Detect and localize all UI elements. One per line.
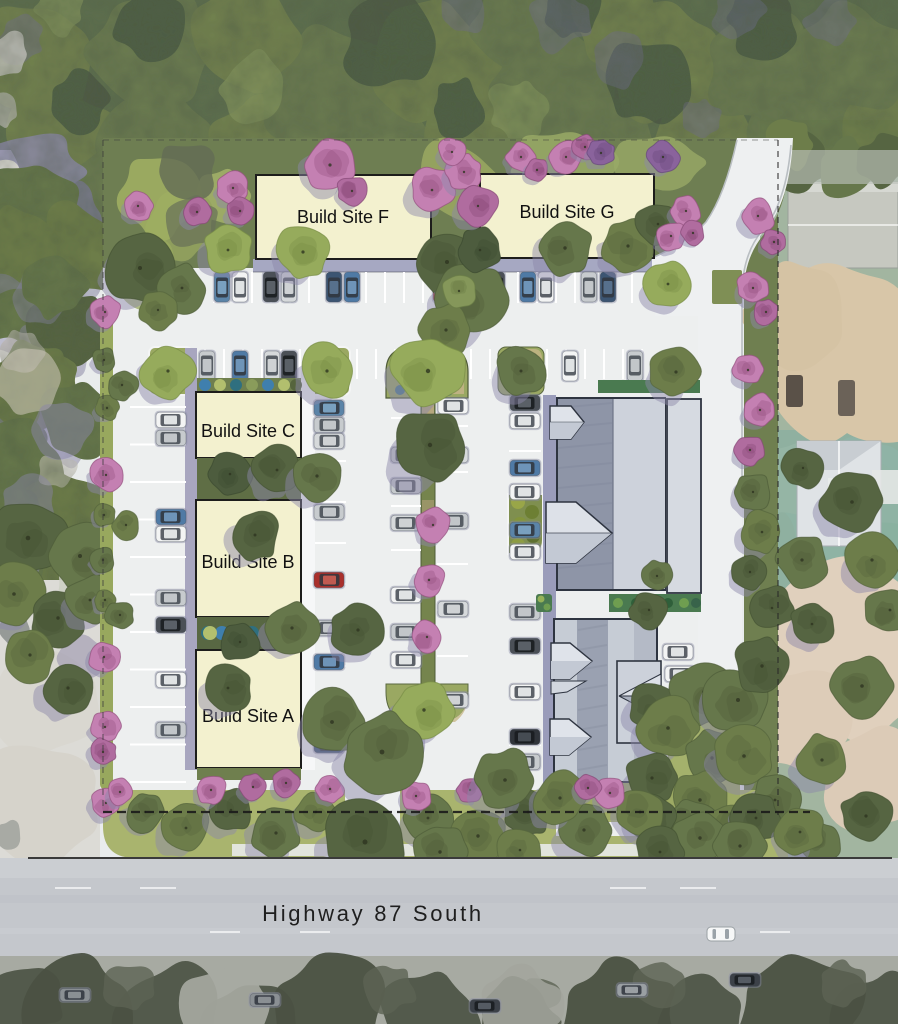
svg-text:Build Site G: Build Site G <box>519 202 614 222</box>
svg-text:Highway 87 South: Highway 87 South <box>262 901 484 926</box>
svg-text:Build Site C: Build Site C <box>201 421 295 441</box>
